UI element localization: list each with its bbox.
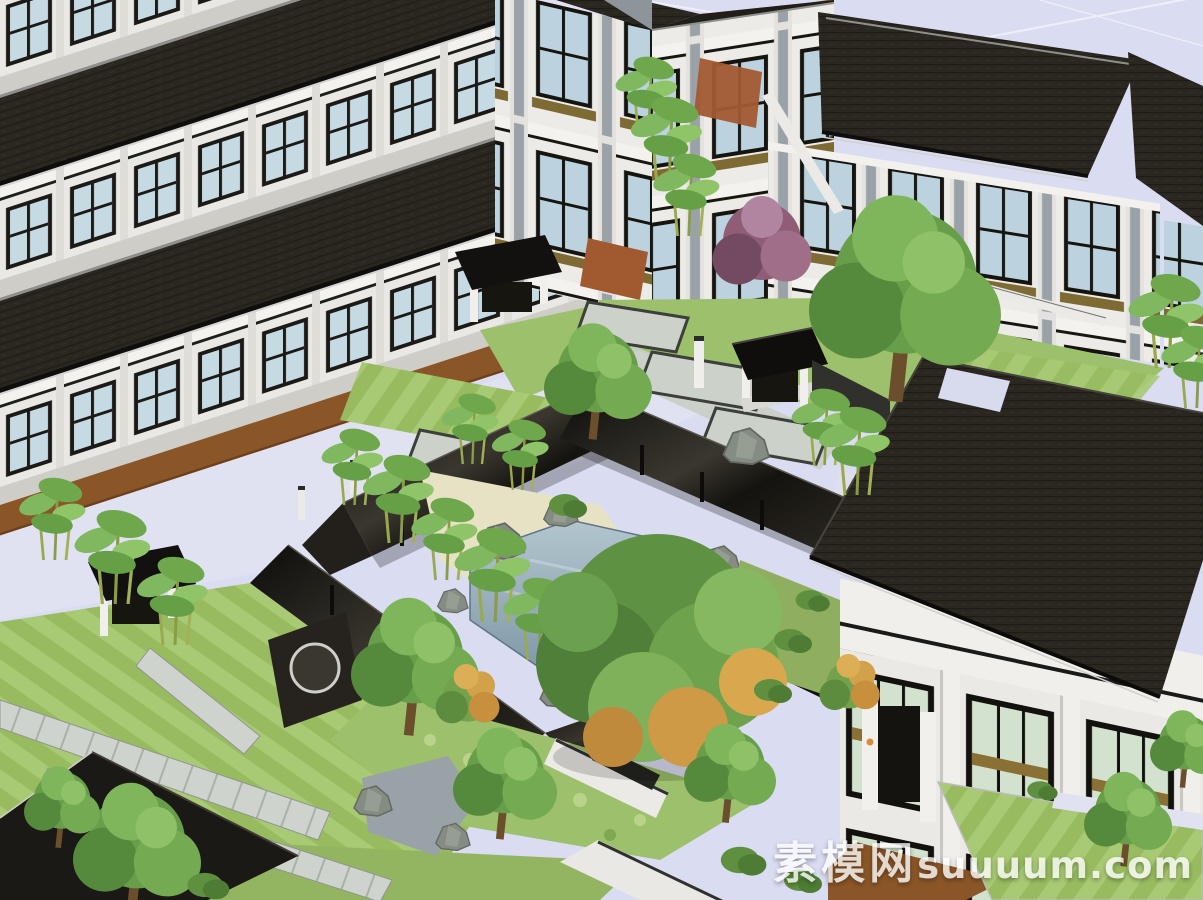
render-canvas: 素模网suuuum.com [0,0,1203,900]
watermark: 素模网suuuum.com [773,842,1193,886]
watermark-site-name: 素模网 [773,838,917,889]
watermark-domain: suuuum.com [917,844,1193,887]
